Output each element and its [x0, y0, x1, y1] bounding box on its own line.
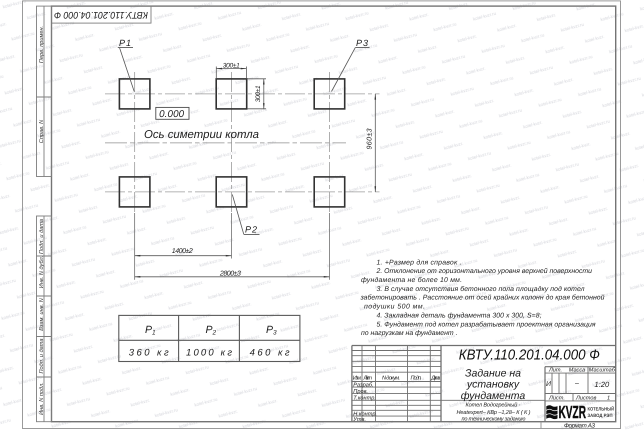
svg-text:1400±2: 1400±2 — [172, 248, 193, 255]
svg-text:Т.контр.: Т.контр. — [353, 396, 376, 402]
svg-text:960±3: 960±3 — [367, 128, 374, 149]
svg-text:по нагрузкам на фундамент .: по нагрузкам на фундамент . — [361, 330, 458, 337]
svg-text:Подп. и дата: Подп. и дата — [38, 219, 45, 254]
svg-text:Дата: Дата — [430, 376, 440, 382]
svg-text:Р3: Р3 — [356, 38, 368, 48]
svg-text:фундамента не более 10 мм.: фундамента не более 10 мм. — [361, 276, 462, 284]
svg-text:Heatexpert– КВр –1,28– К ( К ): Heatexpert– КВр –1,28– К ( К ) — [457, 409, 531, 416]
svg-text:Изм.: Изм. — [353, 376, 362, 382]
svg-text:Лист.: Лист. — [548, 395, 565, 401]
svg-text:Лит.: Лит. — [548, 368, 562, 374]
svg-text:2. Отклонение от горизонтальн: 2. Отклонение от горизонтального уровня … — [376, 267, 593, 275]
svg-text:забетонировать . Расстояние от: забетонировать . Расстояние от осей край… — [360, 294, 605, 302]
svg-text:Р2: Р2 — [245, 224, 257, 234]
svg-text:КВТУ.110.201.04.000 Ф: КВТУ.110.201.04.000 Ф — [54, 9, 148, 20]
svg-text:Подп.: Подп. — [411, 375, 422, 382]
svg-text:Формат А3: Формат А3 — [564, 422, 596, 429]
svg-text:фундамента: фундамента — [461, 390, 526, 402]
svg-text:ЗАВОД РЭП: ЗАВОД РЭП — [588, 413, 613, 419]
svg-text:по техническому заданию: по техническому заданию — [462, 416, 527, 423]
svg-text:–: – — [574, 381, 579, 388]
svg-text:0.000: 0.000 — [159, 109, 185, 120]
svg-text:4. Закладная деталь фундамент: 4. Закладная деталь фундамента 300 х 300… — [377, 312, 542, 319]
svg-text:Перв. примен.: Перв. примен. — [39, 26, 45, 63]
svg-text:1. +Размер для справок .: 1. +Размер для справок . — [377, 259, 462, 266]
svg-text:КВТУ.110.201.04.000 Ф: КВТУ.110.201.04.000 Ф — [459, 348, 600, 364]
svg-text:КОТЕЛЬНЫЙ: КОТЕЛЬНЫЙ — [588, 406, 615, 413]
svg-text:Инв. N подл.: Инв. N подл. — [38, 382, 45, 415]
svg-text:1:20: 1:20 — [594, 380, 610, 389]
svg-text:Масса: Масса — [569, 368, 586, 374]
svg-text:300±1: 300±1 — [255, 85, 262, 102]
svg-text:3. В случае отсутствия бетонн: 3. В случае отсутствия бетонного пола пл… — [377, 285, 585, 293]
svg-text:Взам. инв. N: Взам. инв. N — [39, 297, 45, 331]
svg-text:подушки 500 мм.: подушки 500 мм. — [364, 304, 425, 311]
svg-text:Утв.: Утв. — [352, 417, 366, 423]
svg-text:1: 1 — [607, 395, 610, 401]
svg-text:5. Фундамент под котел разраб: 5. Фундамент под котел разрабатывает про… — [377, 320, 596, 328]
svg-text:KVZR: KVZR — [559, 402, 587, 422]
svg-text:Листов: Листов — [575, 395, 596, 401]
svg-text:Справ. N: Справ. N — [39, 119, 45, 143]
svg-text:N докум.: N докум. — [382, 375, 400, 382]
svg-text:Котел Водогрейный ·: Котел Водогрейный · — [466, 401, 521, 408]
svg-text:Ось симетрии котла: Ось симетрии котла — [144, 129, 259, 141]
svg-text:Подп. и дата: Подп. и дата — [38, 338, 45, 373]
svg-text:Инв. N дубл.: Инв. N дубл. — [38, 256, 45, 288]
svg-text:2800±3: 2800±3 — [219, 270, 241, 277]
svg-text:установку: установку — [466, 379, 520, 391]
svg-text:300±1: 300±1 — [223, 62, 240, 69]
svg-text:Масштаб: Масштаб — [589, 367, 616, 374]
svg-text:Лист: Лист — [363, 376, 373, 382]
svg-text:Пров.: Пров. — [353, 389, 368, 395]
svg-text:Разраб.: Разраб. — [353, 382, 373, 389]
svg-text:Р1: Р1 — [119, 38, 131, 48]
